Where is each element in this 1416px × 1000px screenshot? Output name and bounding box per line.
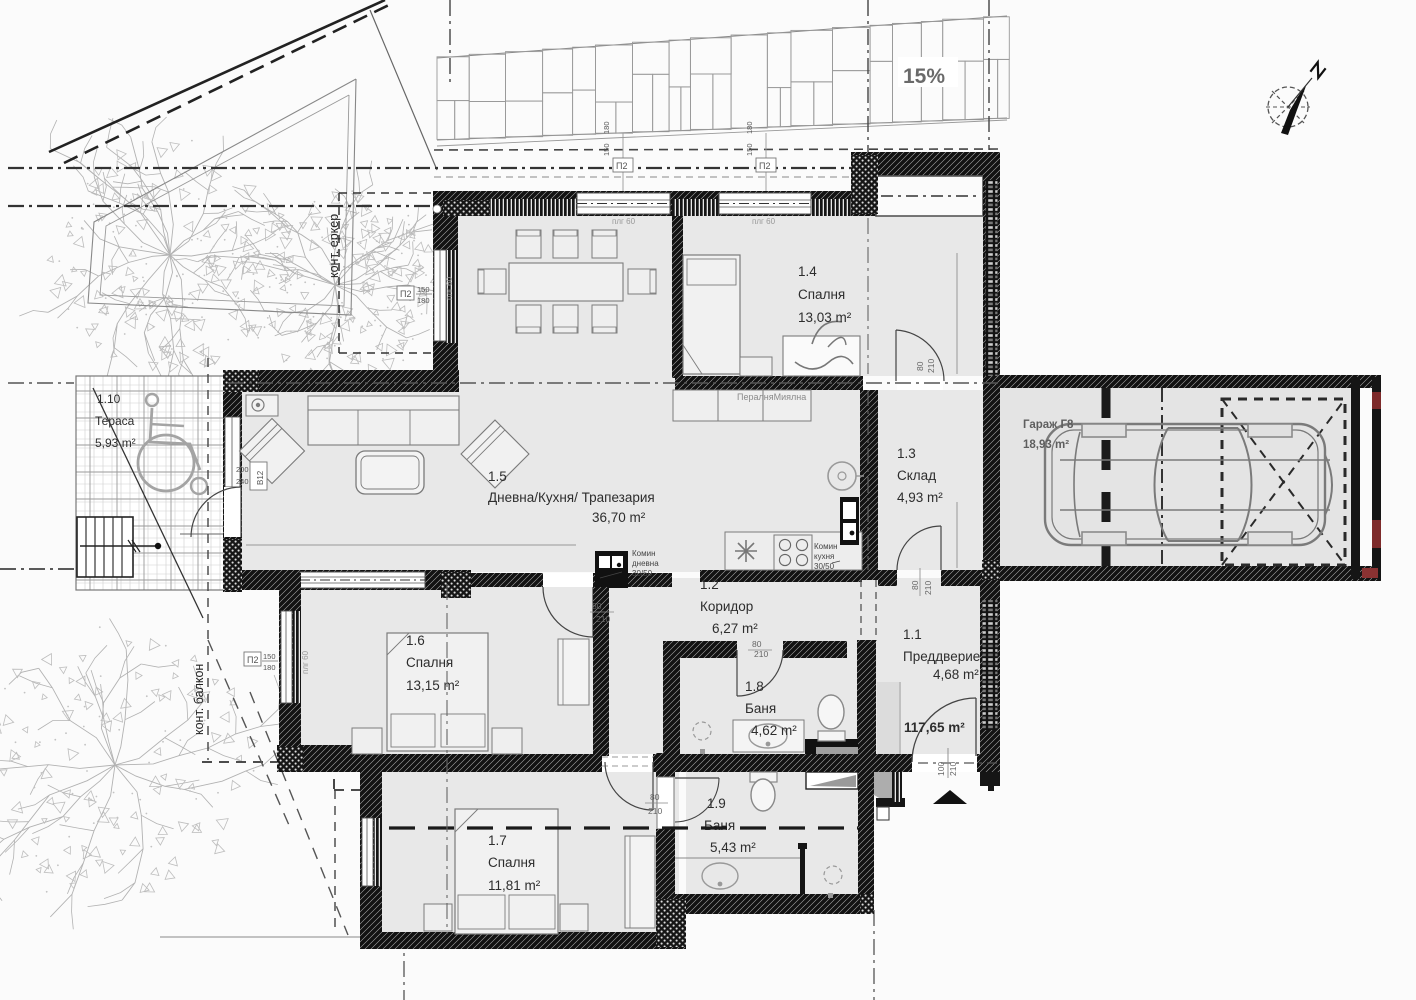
svg-text:4,68 m²: 4,68 m² (933, 667, 979, 682)
svg-text:6,27 m²: 6,27 m² (712, 621, 758, 636)
svg-text:Спалня: Спалня (798, 287, 845, 302)
svg-text:плг 60: плг 60 (301, 650, 310, 674)
svg-text:11,81 m²: 11,81 m² (488, 878, 541, 893)
svg-text:210: 210 (948, 762, 958, 776)
svg-text:150: 150 (263, 652, 276, 661)
svg-text:4,93 m²: 4,93 m² (897, 490, 943, 505)
svg-text:15%: 15% (903, 65, 945, 88)
svg-text:150: 150 (417, 285, 430, 294)
svg-text:Склад: Склад (897, 468, 936, 483)
svg-text:1.8: 1.8 (745, 679, 764, 694)
svg-text:117,65 m²: 117,65 m² (904, 720, 965, 735)
svg-text:80: 80 (592, 601, 602, 611)
svg-text:80: 80 (915, 361, 925, 371)
svg-text:210: 210 (926, 359, 936, 373)
svg-text:Комин: Комин (632, 549, 656, 558)
svg-text:210: 210 (923, 581, 933, 595)
svg-text:1.7: 1.7 (488, 833, 507, 848)
svg-text:150: 150 (602, 143, 611, 156)
svg-text:Тераса: Тераса (95, 414, 135, 428)
svg-text:Дневна/Кухня/ Трапезария: Дневна/Кухня/ Трапезария (488, 490, 655, 505)
svg-text:210: 210 (596, 614, 610, 624)
svg-text:100: 100 (936, 762, 946, 776)
svg-text:30/50: 30/50 (814, 562, 835, 571)
svg-text:1.3: 1.3 (897, 446, 916, 461)
svg-text:Комин: Комин (814, 542, 838, 551)
svg-text:36,70 m²: 36,70 m² (592, 510, 646, 525)
svg-text:конт. балкон: конт. балкон (192, 664, 206, 735)
svg-text:плг 60: плг 60 (445, 276, 454, 300)
svg-text:П2: П2 (616, 161, 627, 171)
svg-text:кухня: кухня (814, 552, 834, 561)
svg-text:Спалня: Спалня (406, 655, 453, 670)
svg-text:1.1: 1.1 (903, 627, 922, 642)
svg-text:180: 180 (602, 121, 611, 134)
svg-text:150: 150 (745, 143, 754, 156)
svg-text:Гараж Г8: Гараж Г8 (1023, 419, 1074, 431)
svg-text:180: 180 (263, 663, 276, 672)
svg-text:1.4: 1.4 (798, 264, 817, 279)
svg-text:4,62 m²: 4,62 m² (751, 723, 797, 738)
svg-text:30/50: 30/50 (632, 569, 653, 578)
svg-text:Коридор: Коридор (700, 599, 753, 614)
svg-text:Преддверие: Преддверие (903, 649, 980, 664)
svg-text:1.2: 1.2 (700, 577, 719, 592)
svg-text:Баня: Баня (704, 818, 735, 833)
svg-text:180: 180 (745, 121, 754, 134)
svg-text:180: 180 (417, 296, 430, 305)
svg-text:13,03 m²: 13,03 m² (798, 310, 852, 325)
svg-text:плг 60: плг 60 (752, 217, 776, 226)
svg-text:плг 60: плг 60 (612, 217, 636, 226)
svg-text:18,93 m²: 18,93 m² (1023, 439, 1069, 451)
svg-text:80: 80 (752, 639, 762, 649)
svg-text:80: 80 (650, 792, 660, 802)
svg-text:5,43 m²: 5,43 m² (710, 840, 756, 855)
svg-text:Баня: Баня (745, 701, 776, 716)
svg-text:13,15 m²: 13,15 m² (406, 678, 460, 693)
svg-text:П2: П2 (247, 655, 258, 665)
svg-text:П2: П2 (400, 289, 411, 299)
svg-text:1.6: 1.6 (406, 633, 425, 648)
svg-text:5,93 m²: 5,93 m² (95, 436, 136, 450)
svg-text:ПералняМиялна: ПералняМиялна (737, 392, 806, 402)
svg-text:200: 200 (236, 465, 249, 474)
svg-text:1.9: 1.9 (707, 796, 726, 811)
svg-text:П2: П2 (759, 161, 770, 171)
svg-text:1.5: 1.5 (488, 469, 507, 484)
svg-text:конт. еркер: конт. еркер (327, 214, 341, 278)
svg-text:Спалня: Спалня (488, 855, 535, 870)
svg-text:дневна: дневна (632, 559, 659, 568)
svg-text:210: 210 (648, 806, 662, 816)
svg-text:210: 210 (754, 649, 768, 659)
svg-text:240: 240 (236, 477, 249, 486)
svg-text:В12: В12 (256, 470, 265, 485)
svg-text:80: 80 (910, 580, 920, 590)
